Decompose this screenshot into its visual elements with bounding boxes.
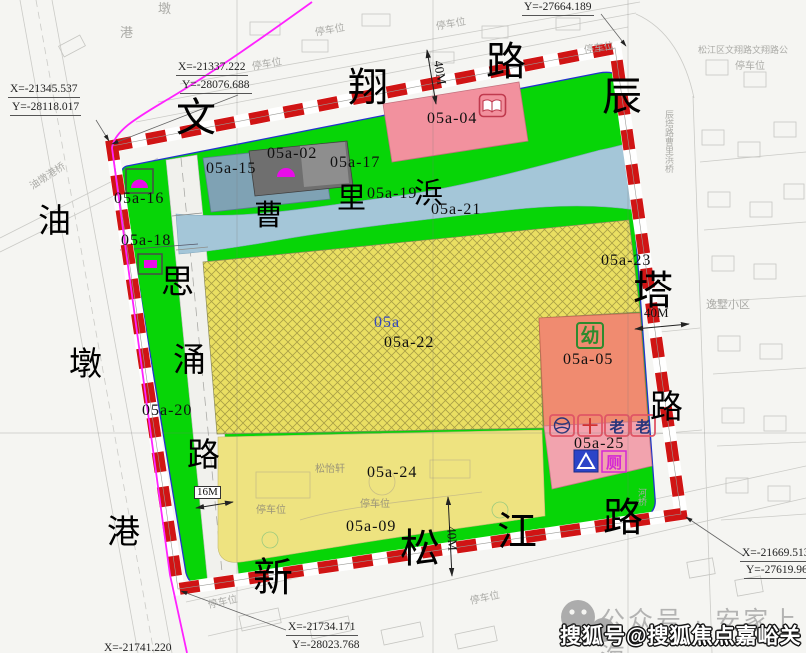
elder-care-icon-1: 老 xyxy=(605,419,629,437)
planning-map: 文 翔 路 辰 塔 路 新 松 江 路 油 墩 港 思 涌 路 曹 里 浜 05… xyxy=(0,0,806,653)
canal-char-dun: 墩 xyxy=(158,2,171,15)
parcel-label-05a-25: 05a-25 xyxy=(574,436,624,452)
coord-x4: X=-21669.513 xyxy=(740,548,806,562)
canal-youdungang-char3: 港 xyxy=(107,517,140,550)
parcel-label-05a-05: 05a-05 xyxy=(563,352,613,368)
road-siyong-char3: 路 xyxy=(187,440,220,473)
parcel-label-05a-15: 05a-15 xyxy=(206,161,256,177)
parcel-label-05a-24: 05a-24 xyxy=(367,465,417,481)
kindergarten-icon: 幼 xyxy=(579,326,601,349)
road-wenxiang-char1: 文 xyxy=(176,98,216,138)
dim-wenxiang-40m: 40M xyxy=(432,59,449,85)
estate-name-label: 逸墅小区 xyxy=(706,300,750,311)
chenta-bridge-label: 辰塔路曹里浜桥 xyxy=(664,110,673,173)
coord-y4: Y=-27619.968 xyxy=(744,565,806,579)
coord-x6: X=-21741.220 xyxy=(102,643,174,653)
parking-label: 停车位 xyxy=(256,506,286,516)
coord-y1: Y=-28076.688 xyxy=(180,80,252,94)
dim-xinsongjiang-40m: 40M xyxy=(445,526,459,551)
dim-siyong-16m: 16M xyxy=(194,486,221,499)
road-xinsongjiang-char3: 江 xyxy=(497,512,537,552)
road-wenxiang-char2: 翔 xyxy=(348,68,388,108)
river-caolibang-char1: 曹 xyxy=(254,202,283,231)
parcel-label-05a-17: 05a-17 xyxy=(330,155,380,171)
canal-youdungang-char2: 墩 xyxy=(69,349,102,382)
river-bridge-label: 河桥 xyxy=(637,488,646,506)
coord-x1: X=-21337.222 xyxy=(176,62,248,76)
songyixuan-label: 松怡轩 xyxy=(315,465,345,475)
parcel-label-05a-18: 05a-18 xyxy=(121,233,171,249)
coord-y5: Y=-28023.768 xyxy=(290,640,362,653)
elder-care-icon-2: 老 xyxy=(631,419,655,437)
clinic-cross-icon: 十 xyxy=(578,418,602,437)
parcel-label-05a-prefix: 05a xyxy=(374,315,400,331)
bus-station-note: 松江区文翔路文翔路公 xyxy=(698,46,788,55)
parking-label: 停车位 xyxy=(360,500,390,510)
parcel-label-05a-23: 05a-23 xyxy=(601,253,651,269)
toilet-icon: 厕 xyxy=(602,454,626,473)
coord-x2: X=-21345.537 xyxy=(8,84,80,98)
road-wenxiang-char3: 路 xyxy=(486,42,526,82)
pump-station-icon xyxy=(574,450,598,472)
parcel-label-05a-09: 05a-09 xyxy=(346,519,396,535)
parcel-label-05a-16: 05a-16 xyxy=(114,191,164,207)
road-chenta-char1: 辰 xyxy=(602,77,642,117)
parcel-label-05a-04: 05a-04 xyxy=(427,111,477,127)
dim-chenta-40m: 40M xyxy=(644,306,669,319)
road-siyong-char1: 思 xyxy=(161,267,194,300)
parking-label: 停车位 xyxy=(735,62,765,72)
canal-youdungang-char1: 油 xyxy=(38,206,71,239)
road-xinsongjiang-char1: 新 xyxy=(253,558,293,598)
road-siyong-char2: 涌 xyxy=(173,345,206,378)
coord-x5: X=-21734.171 xyxy=(286,622,358,636)
sohu-watermark-text: 搜狐号@搜狐焦点嘉峪关站 xyxy=(560,620,806,653)
parcel-label-05a-22: 05a-22 xyxy=(384,335,434,351)
parcel-label-05a-21: 05a-21 xyxy=(431,202,481,218)
road-xinsongjiang-char2: 松 xyxy=(400,529,440,569)
river-caolibang-char2: 里 xyxy=(337,185,366,214)
parcel-label-05a-20: 05a-20 xyxy=(142,403,192,419)
coord-y3: Y=-27664.189 xyxy=(522,2,594,16)
parcel-label-05a-19: 05a-19 xyxy=(367,186,417,202)
parcel-label-05a-02: 05a-02 xyxy=(267,146,317,162)
canal-char-gang: 港 xyxy=(120,26,133,39)
coord-y2: Y=-28118.017 xyxy=(10,102,81,116)
